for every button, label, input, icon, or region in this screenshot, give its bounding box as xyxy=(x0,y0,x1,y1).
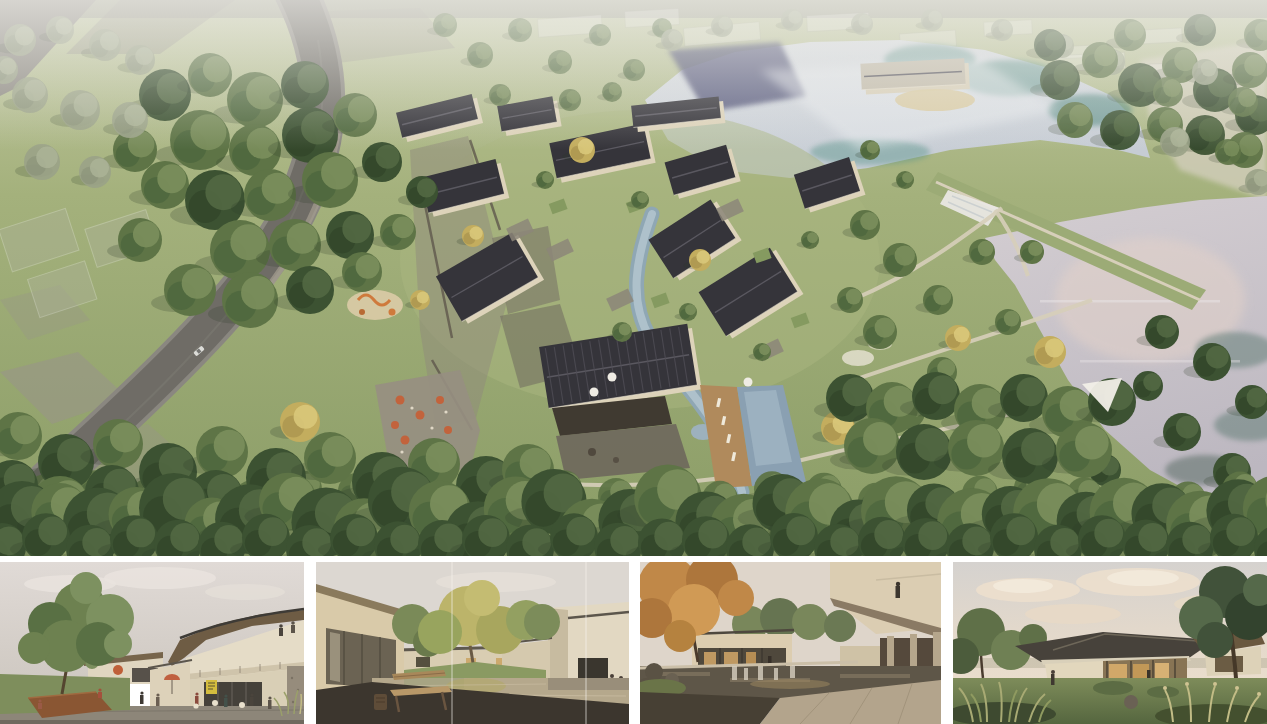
playground xyxy=(347,290,403,320)
presentation-board xyxy=(0,0,1267,724)
thumbnail-reflecting-pool-rendering xyxy=(316,562,629,724)
aerial-site-rendering xyxy=(0,0,1267,556)
rear-wing xyxy=(840,646,880,668)
person-walking xyxy=(1051,670,1055,685)
atmospheric-haze xyxy=(0,0,1267,150)
mid-building xyxy=(148,660,192,712)
thumbnail-row xyxy=(0,562,1267,724)
thumbnail-street-plaza-rendering xyxy=(0,562,304,724)
shop-sign xyxy=(206,680,217,694)
thumbnail-pavilion-rendering xyxy=(953,562,1267,724)
umbrella xyxy=(113,665,123,675)
thumbnail-pond-waterfall-rendering xyxy=(640,562,941,724)
aerial-rendering-canvas xyxy=(0,0,1267,556)
